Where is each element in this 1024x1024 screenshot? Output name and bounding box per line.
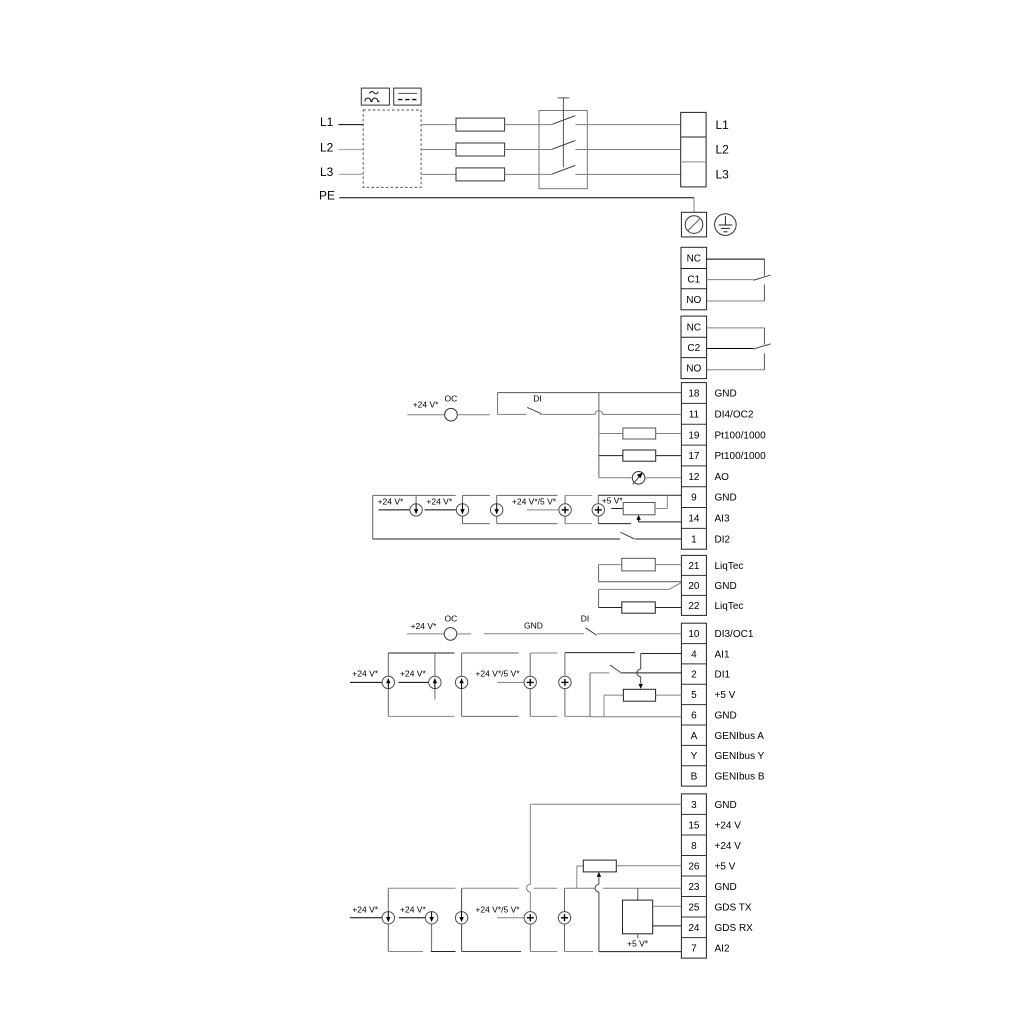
svg-text:+24 V*/5 V*: +24 V*/5 V*	[475, 668, 520, 678]
svg-text:OC: OC	[445, 394, 458, 404]
svg-text:22: 22	[688, 601, 700, 612]
svg-text:14: 14	[688, 514, 700, 525]
svg-text:L2: L2	[716, 143, 730, 157]
svg-text:+24 V*: +24 V*	[352, 905, 378, 915]
svg-text:DI: DI	[533, 394, 542, 404]
svg-text:DI2: DI2	[715, 534, 731, 545]
svg-text:+24 V: +24 V	[715, 820, 742, 831]
svg-text:15: 15	[688, 820, 700, 831]
svg-text:DI: DI	[581, 614, 590, 624]
svg-text:L1: L1	[716, 118, 730, 132]
svg-text:GDS TX: GDS TX	[715, 902, 752, 913]
svg-text:GND: GND	[715, 882, 737, 893]
svg-text:DI1: DI1	[715, 670, 731, 681]
svg-text:NO: NO	[686, 364, 701, 375]
svg-text:4: 4	[691, 649, 697, 660]
svg-text:+24 V*: +24 V*	[378, 497, 404, 507]
svg-text:C2: C2	[687, 343, 700, 354]
svg-text:GND: GND	[524, 621, 543, 631]
svg-text:C1: C1	[687, 274, 700, 285]
svg-text:NC: NC	[687, 254, 701, 265]
svg-text:+24 V*: +24 V*	[352, 668, 378, 678]
svg-text:AI2: AI2	[715, 943, 730, 954]
svg-text:20: 20	[688, 581, 700, 592]
svg-text:DI4/OC2: DI4/OC2	[715, 409, 754, 420]
svg-text:21: 21	[688, 561, 700, 572]
svg-text:GENIbus B: GENIbus B	[715, 772, 765, 783]
svg-text:25: 25	[688, 902, 700, 913]
svg-text:12: 12	[688, 472, 700, 483]
svg-text:Pt100/1000: Pt100/1000	[715, 451, 767, 462]
svg-text:A: A	[691, 731, 698, 742]
svg-text:L1: L1	[320, 115, 334, 129]
svg-text:GENIbus Y: GENIbus Y	[715, 751, 765, 762]
svg-text:AI1: AI1	[715, 649, 730, 660]
svg-text:9: 9	[691, 493, 697, 504]
svg-text:LiqTec: LiqTec	[715, 601, 744, 612]
svg-text:GND: GND	[715, 493, 737, 504]
svg-text:NC: NC	[687, 322, 701, 333]
svg-text:DI3/OC1: DI3/OC1	[715, 629, 754, 640]
svg-text:+5 V: +5 V	[715, 861, 736, 872]
svg-text:26: 26	[688, 861, 700, 872]
svg-text:+24 V*: +24 V*	[400, 668, 426, 678]
svg-text:PE: PE	[319, 188, 335, 202]
svg-text:GND: GND	[715, 389, 737, 400]
svg-text:+5 V*: +5 V*	[627, 938, 649, 948]
svg-text:+24 V*/5 V*: +24 V*/5 V*	[475, 905, 520, 915]
svg-text:Y: Y	[691, 751, 698, 762]
svg-text:7: 7	[691, 943, 697, 954]
svg-text:B: B	[691, 772, 698, 783]
svg-text:+24 V*/5 V*: +24 V*/5 V*	[512, 497, 557, 507]
svg-text:AI3: AI3	[715, 514, 730, 525]
svg-text:Pt100/1000: Pt100/1000	[715, 430, 767, 441]
svg-text:11: 11	[689, 409, 700, 420]
svg-text:OC: OC	[445, 614, 458, 624]
svg-text:+24 V*: +24 V*	[411, 621, 437, 631]
svg-text:L3: L3	[716, 168, 730, 182]
svg-text:23: 23	[688, 882, 700, 893]
svg-text:+24 V*: +24 V*	[426, 497, 452, 507]
svg-text:5: 5	[691, 690, 697, 701]
svg-text:10: 10	[688, 629, 700, 640]
svg-text:19: 19	[688, 430, 700, 441]
svg-text:L3: L3	[320, 165, 334, 179]
svg-text:2: 2	[691, 670, 697, 681]
svg-text:18: 18	[688, 389, 700, 400]
svg-text:+5 V: +5 V	[715, 690, 736, 701]
svg-text:+24 V*: +24 V*	[400, 905, 426, 915]
svg-text:L2: L2	[320, 141, 334, 155]
svg-text:3: 3	[691, 800, 697, 811]
svg-text:+24 V*: +24 V*	[413, 400, 439, 410]
svg-text:LiqTec: LiqTec	[715, 561, 744, 572]
svg-text:GND: GND	[715, 710, 737, 721]
svg-text:GDS RX: GDS RX	[715, 923, 754, 934]
svg-text:8: 8	[691, 841, 697, 852]
svg-text:NO: NO	[686, 295, 701, 306]
svg-text:AO: AO	[715, 472, 730, 483]
svg-text:1: 1	[691, 534, 697, 545]
svg-text:GND: GND	[715, 800, 737, 811]
svg-text:GND: GND	[715, 581, 737, 592]
svg-text:6: 6	[691, 710, 697, 721]
svg-text:17: 17	[688, 451, 700, 462]
svg-text:+24 V: +24 V	[715, 841, 742, 852]
svg-text:24: 24	[688, 923, 700, 934]
svg-text:GENIbus A: GENIbus A	[715, 731, 765, 742]
svg-text:+5 V*: +5 V*	[602, 496, 624, 506]
